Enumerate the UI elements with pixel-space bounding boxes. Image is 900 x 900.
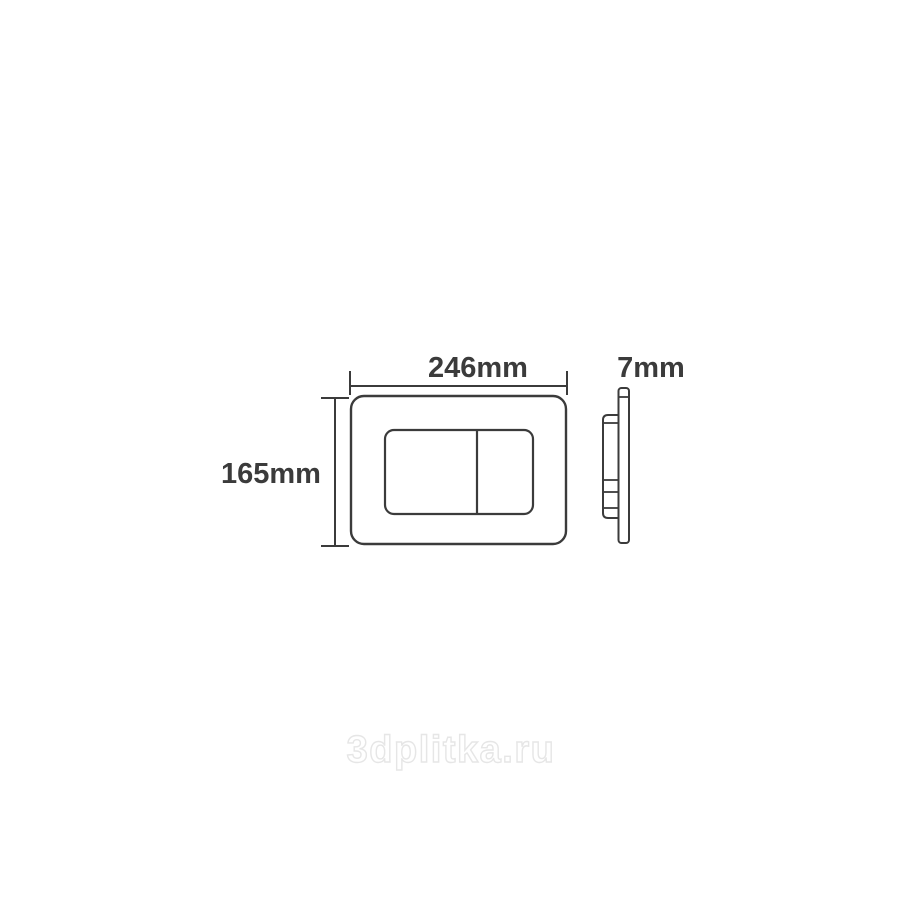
width-dimension: 246mm: [350, 352, 567, 395]
watermark-text: 3dplitka.ru: [347, 729, 556, 771]
depth-dimension-label: 7mm: [617, 352, 685, 384]
drawing-canvas: 246mm 165mm 7mm: [0, 0, 900, 900]
front-view: [351, 396, 566, 544]
side-rear-box-outline: [603, 415, 619, 518]
side-plate-profile: [619, 388, 630, 543]
button-panel-outline: [385, 430, 533, 514]
depth-dimension: 7mm: [617, 352, 685, 384]
height-dimension-label: 165mm: [221, 458, 321, 490]
technical-drawing: 246mm 165mm 7mm: [0, 0, 900, 900]
height-dimension: 165mm: [221, 398, 349, 546]
side-view: [603, 388, 629, 543]
width-dimension-label: 246mm: [428, 352, 528, 384]
